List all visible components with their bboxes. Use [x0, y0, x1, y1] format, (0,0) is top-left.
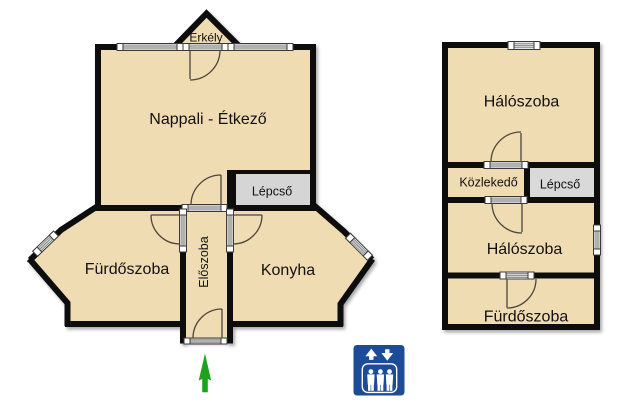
svg-text:Közlekedő: Közlekedő [459, 175, 517, 189]
svg-text:Nappali - Étkező: Nappali - Étkező [149, 109, 266, 128]
svg-text:Fürdőszoba: Fürdőszoba [484, 309, 569, 326]
svg-text:Előszoba: Előszoba [197, 236, 211, 287]
svg-text:Fürdőszoba: Fürdőszoba [85, 261, 170, 278]
svg-text:Konyha: Konyha [261, 262, 315, 279]
svg-text:Lépcső: Lépcső [540, 178, 580, 192]
svg-text:Hálószoba: Hálószoba [484, 94, 560, 111]
svg-text:Hálószoba: Hálószoba [487, 241, 563, 258]
svg-text:Lépcső: Lépcső [252, 185, 292, 199]
svg-text:Erkély: Erkély [189, 31, 222, 45]
